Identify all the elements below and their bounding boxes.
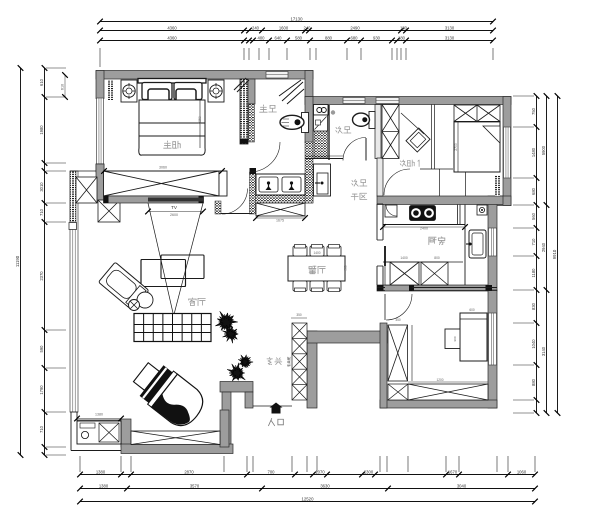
svg-text:350: 350 — [296, 313, 302, 317]
svg-text:1400: 1400 — [400, 256, 408, 260]
svg-text:1380: 1380 — [96, 469, 106, 474]
svg-text:1380: 1380 — [99, 483, 109, 488]
svg-text:2700: 2700 — [454, 143, 458, 151]
svg-text:680: 680 — [351, 35, 359, 40]
svg-text:1670: 1670 — [448, 469, 458, 474]
svg-text:17130: 17130 — [291, 16, 304, 21]
svg-text:880: 880 — [531, 378, 536, 386]
svg-text:180: 180 — [398, 35, 406, 40]
svg-text:3060: 3060 — [159, 166, 167, 170]
svg-text:880: 880 — [325, 35, 333, 40]
svg-text:12520: 12520 — [302, 496, 315, 501]
svg-text:240: 240 — [252, 25, 260, 30]
svg-text:900: 900 — [344, 265, 348, 271]
svg-text:1180: 1180 — [531, 268, 536, 278]
svg-text:590: 590 — [39, 345, 44, 353]
svg-text:1675: 1675 — [276, 219, 284, 223]
svg-text:3140: 3140 — [541, 346, 546, 356]
svg-text:2490: 2490 — [350, 25, 360, 30]
svg-text:350: 350 — [395, 318, 401, 322]
svg-text:TV: TV — [171, 205, 178, 210]
svg-text:800: 800 — [434, 256, 440, 260]
svg-text:11190: 11190 — [15, 255, 20, 267]
svg-text:4360: 4360 — [167, 25, 177, 30]
svg-text:1200: 1200 — [436, 378, 443, 382]
svg-text:240: 240 — [304, 25, 312, 30]
svg-text:1040: 1040 — [531, 339, 536, 349]
svg-text:180: 180 — [400, 25, 408, 30]
svg-text:750: 750 — [531, 107, 536, 115]
svg-text:710: 710 — [531, 238, 536, 246]
svg-text:2350: 2350 — [198, 116, 202, 124]
svg-text:1980: 1980 — [39, 125, 44, 135]
svg-text:900: 900 — [453, 336, 457, 341]
svg-text:1380: 1380 — [95, 413, 103, 417]
svg-text:1790: 1790 — [39, 385, 44, 395]
svg-text:1480: 1480 — [531, 147, 536, 157]
svg-text:640: 640 — [275, 35, 283, 40]
svg-text:2870: 2870 — [184, 469, 194, 474]
svg-text:9910: 9910 — [552, 249, 557, 259]
svg-text:1600: 1600 — [279, 25, 289, 30]
svg-text:2600: 2600 — [170, 213, 178, 217]
svg-text:3130: 3130 — [445, 25, 455, 30]
svg-text:610: 610 — [61, 84, 65, 90]
svg-text:580: 580 — [295, 35, 303, 40]
svg-text:1060: 1060 — [517, 469, 527, 474]
svg-text:2940: 2940 — [541, 242, 546, 252]
svg-text:2300: 2300 — [364, 469, 374, 474]
svg-text:3570: 3570 — [190, 483, 200, 488]
svg-text:710: 710 — [39, 425, 44, 433]
svg-text:400: 400 — [258, 35, 266, 40]
svg-text:3130: 3130 — [445, 35, 455, 40]
svg-text:5900: 5900 — [541, 145, 546, 155]
svg-text:610: 610 — [39, 78, 44, 86]
svg-text:700: 700 — [268, 469, 276, 474]
svg-text:600: 600 — [469, 308, 475, 312]
svg-text:1400: 1400 — [313, 251, 320, 255]
svg-text:930: 930 — [373, 35, 381, 40]
svg-text:2370: 2370 — [39, 271, 44, 281]
svg-text:710: 710 — [39, 208, 44, 216]
svg-text:830: 830 — [531, 302, 536, 310]
svg-text:4360: 4360 — [167, 35, 177, 40]
svg-text:560: 560 — [531, 212, 536, 220]
svg-text:680: 680 — [531, 187, 536, 195]
svg-text:3010: 3010 — [39, 182, 44, 192]
svg-text:3630: 3630 — [320, 483, 330, 488]
svg-text:3040: 3040 — [457, 483, 467, 488]
svg-text:1070: 1070 — [315, 469, 325, 474]
